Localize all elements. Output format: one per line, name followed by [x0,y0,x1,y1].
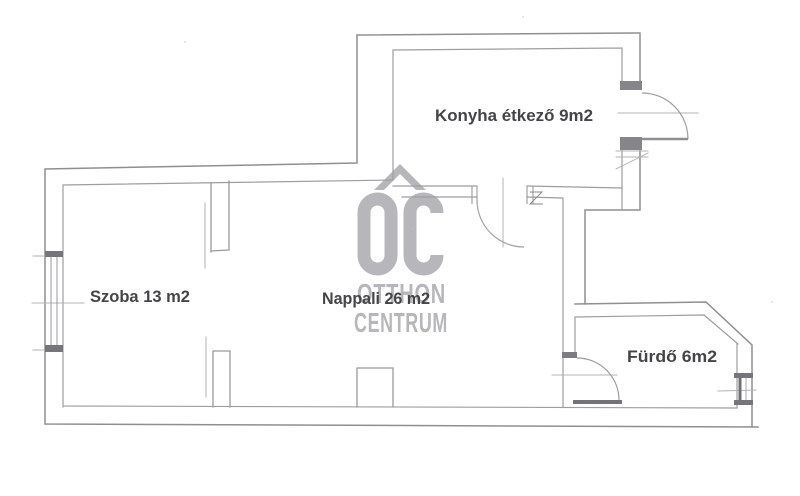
furdo-door-swing-arc [577,358,619,400]
watermark-line2: CENTRUM [354,307,448,338]
room-label-furdo: Fürdő 6m2 [627,347,717,366]
kitchen-door-jamb-top [620,81,642,90]
furdo-window-jamb-top [734,373,753,378]
szoba-window-jamb-top [45,251,63,257]
outer-walls [45,33,758,427]
szoba-window-jamb-bottom [45,345,63,352]
kitchen-door-swing-arc [642,93,688,139]
watermark: OTTHON CENTRUM [354,164,448,338]
floorplan-drawing: OTTHON CENTRUM [0,0,800,496]
room-label-szoba: Szoba 13 m2 [90,287,190,306]
partition-wall [211,181,230,407]
kitchen-door-jamb-bottom [620,137,642,150]
furdo-door-leaf [573,400,622,404]
floorplan-page: OTTHON CENTRUM [0,0,800,496]
oc-monogram [364,199,448,269]
monogram-letter-o [364,199,391,269]
monogram-letter-c-gap [428,213,448,255]
furdo-door-jamb [562,352,577,358]
chimney-pillar [357,368,393,407]
nappali-konyha-door-mark [530,192,543,204]
room-label-nappali: Nappali 26 m2 [322,289,430,308]
scan-speckles [184,16,772,302]
room-label-konyha: Konyha étkező 9m2 [435,106,593,125]
nappali-konyha-door-swing-arc [477,200,524,247]
furdo-window-jamb-bottom [734,400,753,405]
